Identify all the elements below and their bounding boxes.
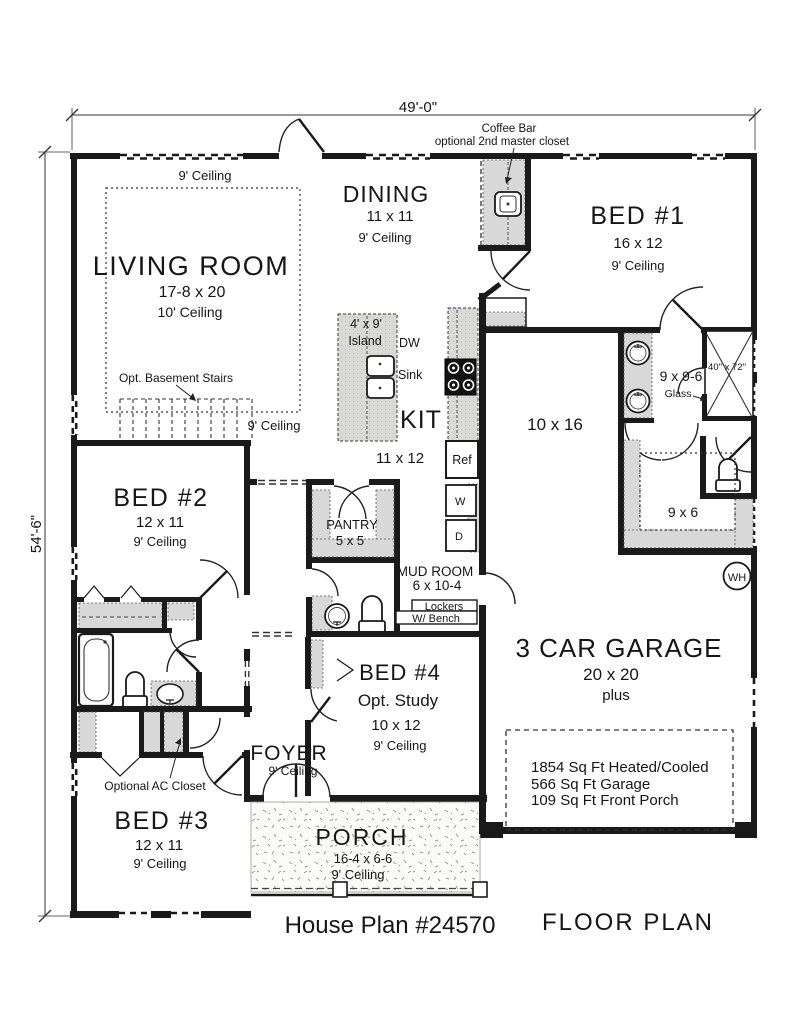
svg-text:Lockers: Lockers: [425, 601, 464, 613]
svg-text:9' Ceiling: 9' Ceiling: [133, 534, 186, 549]
svg-text:FLOOR PLAN: FLOOR PLAN: [542, 909, 714, 936]
svg-text:566 Sq Ft Garage: 566 Sq Ft Garage: [531, 776, 650, 793]
svg-text:9' Ceiling: 9' Ceiling: [611, 258, 664, 273]
svg-text:1854 Sq Ft Heated/Cooled: 1854 Sq Ft Heated/Cooled: [531, 759, 709, 776]
svg-text:9' Ceiling: 9' Ceiling: [331, 867, 384, 882]
svg-text:W/ Bench: W/ Bench: [412, 613, 460, 625]
svg-text:9' Ceiling: 9' Ceiling: [247, 418, 300, 433]
svg-text:Coffee Bar: Coffee Bar: [482, 123, 537, 135]
svg-text:9' Ceiling: 9' Ceiling: [269, 764, 318, 778]
svg-text:9' Ceiling: 9' Ceiling: [178, 168, 231, 183]
svg-text:109 Sq Ft Front Porch: 109 Sq Ft Front Porch: [531, 792, 679, 809]
svg-text:plus: plus: [602, 687, 630, 704]
svg-text:40" x 72": 40" x 72": [708, 362, 746, 373]
svg-text:BED #2: BED #2: [113, 484, 208, 512]
svg-text:11 x 11: 11 x 11: [367, 208, 414, 225]
svg-text:17-8 x 20: 17-8 x 20: [159, 284, 226, 301]
svg-text:KIT: KIT: [400, 406, 442, 434]
svg-text:54'-6": 54'-6": [28, 515, 45, 553]
svg-text:PANTRY: PANTRY: [326, 517, 378, 532]
svg-text:9' Ceiling: 9' Ceiling: [358, 230, 411, 245]
svg-text:DINING: DINING: [343, 181, 430, 207]
svg-text:Opt. Study: Opt. Study: [358, 691, 439, 710]
svg-text:Glass: Glass: [665, 388, 692, 400]
svg-text:12 x 11: 12 x 11: [136, 514, 184, 531]
svg-text:Ref: Ref: [452, 453, 472, 467]
svg-text:Island: Island: [348, 334, 381, 348]
svg-text:12 x 11: 12 x 11: [135, 837, 183, 854]
svg-text:House Plan #24570: House Plan #24570: [285, 912, 496, 939]
svg-text:DW: DW: [399, 336, 420, 350]
svg-text:9 x 9-6: 9 x 9-6: [660, 368, 703, 384]
svg-text:BED #1: BED #1: [590, 202, 685, 230]
svg-text:10 x 12: 10 x 12: [371, 717, 420, 734]
svg-text:5 x 5: 5 x 5: [336, 533, 364, 548]
svg-text:Opt. Basement Stairs: Opt. Basement Stairs: [119, 371, 233, 385]
svg-text:11 x 12: 11 x 12: [376, 450, 424, 467]
svg-text:WH: WH: [728, 572, 746, 584]
svg-text:16 x 12: 16 x 12: [613, 235, 662, 252]
svg-text:W: W: [455, 496, 466, 508]
svg-text:FOYER: FOYER: [250, 742, 327, 765]
svg-text:49'-0": 49'-0": [399, 99, 437, 116]
svg-text:Sink: Sink: [398, 368, 423, 382]
svg-text:4' x 9': 4' x 9': [350, 317, 382, 331]
svg-text:D: D: [455, 531, 463, 543]
svg-text:6 x 10-4: 6 x 10-4: [413, 578, 462, 593]
svg-text:9 x 6: 9 x 6: [668, 504, 699, 520]
svg-text:PORCH: PORCH: [315, 824, 408, 850]
svg-text:16-4 x 6-6: 16-4 x 6-6: [334, 851, 393, 866]
svg-text:LIVING ROOM: LIVING ROOM: [93, 251, 290, 281]
svg-text:BED #4: BED #4: [359, 660, 441, 685]
svg-text:9' Ceiling: 9' Ceiling: [133, 856, 186, 871]
svg-text:BED #3: BED #3: [114, 807, 209, 835]
svg-text:20 x 20: 20 x 20: [583, 665, 639, 684]
svg-text:MUD ROOM: MUD ROOM: [397, 564, 474, 579]
svg-text:9' Ceiling: 9' Ceiling: [373, 738, 426, 753]
svg-text:optional 2nd master closet: optional 2nd master closet: [435, 136, 570, 148]
svg-text:3 CAR GARAGE: 3 CAR GARAGE: [515, 633, 722, 663]
svg-text:Optional AC Closet: Optional AC Closet: [104, 779, 206, 793]
svg-text:10' Ceiling: 10' Ceiling: [158, 304, 223, 320]
svg-text:10 x 16: 10 x 16: [527, 415, 583, 434]
